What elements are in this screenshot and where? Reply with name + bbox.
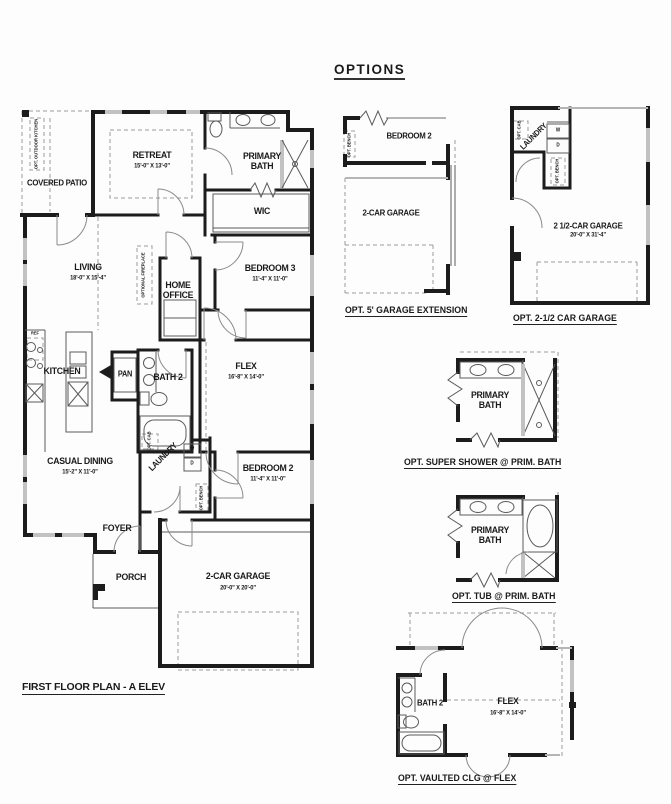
dim-label-bedroom2: 11'-4" X 11'-0" (250, 477, 285, 484)
opt1-label-opt-bench: OPT. BENCH (348, 133, 353, 158)
label-dryer: D (190, 461, 193, 466)
floor-plan-sheet: OPTIONS COVERED PATIO OPT. OUTDOOR KITCH… (0, 0, 671, 804)
room-label-covered-patio: COVERED PATIO (27, 178, 87, 187)
label-ref: REF (31, 332, 39, 337)
room-label-porch: PORCH (116, 573, 146, 583)
room-label-casual-dining: CASUAL DINING (47, 457, 113, 467)
room-label-flex: FLEX (235, 362, 256, 372)
room-label-pan: PAN (118, 371, 132, 380)
opt5-room-label-flex: FLEX (497, 697, 518, 707)
room-label-primary-bath: PRIMARY BATH (237, 152, 287, 173)
opt2-dim-label-garage: 20'-0" X 31'-4" (570, 233, 606, 240)
opt5-caption: OPT. VAULTED CLG @ FLEX (398, 773, 516, 785)
label-washer: W (190, 447, 194, 452)
room-label-living: LIVING (74, 263, 101, 273)
dim-label-living: 18'-0" X 15'-4" (70, 276, 106, 283)
label-opt-cab: OPT. CAB (148, 431, 153, 450)
opt2-caption: OPT. 2-1/2 CAR GARAGE (513, 313, 617, 325)
room-label-bedroom2: BEDROOM 2 (243, 464, 293, 474)
opt2-label-opt-cab: OPT. CAB (518, 120, 523, 139)
opt5-room-label-bath2: BATH 2 (417, 698, 443, 707)
room-label-garage: 2-CAR GARAGE (206, 572, 270, 582)
opt1-room-label-garage: 2-CAR GARAGE (362, 208, 419, 217)
dim-label-retreat: 15'-0" X 13'-0" (134, 164, 170, 171)
opt2-label-opt-bench: OPT. BENCH (556, 159, 561, 184)
room-label-kitchen: KITCHEN (44, 367, 81, 377)
dim-label-bedroom3: 11'-4" X 11'-0" (252, 277, 287, 284)
dim-label-flex: 16'-8" X 14'-0" (228, 375, 264, 382)
opt3-caption: OPT. SUPER SHOWER @ PRIM. BATH (404, 457, 561, 469)
page-title: OPTIONS (334, 62, 405, 80)
room-label-wic: WIC (254, 207, 270, 217)
opt3-room-label-primary-bath: PRIMARY BATH (465, 391, 515, 412)
dim-label-garage: 20'-0" X 20'-0" (220, 586, 256, 593)
plan-title: FIRST FLOOR PLAN - A ELEV (22, 681, 165, 695)
room-label-foyer: FOYER (103, 524, 132, 534)
opt2-room-label-garage: 2 1/2-CAR GARAGE (553, 221, 622, 230)
room-label-bath2: BATH 2 (153, 373, 182, 383)
opt1-caption: OPT. 5' GARAGE EXTENSION (345, 305, 467, 317)
opt2-label-washer: W (556, 128, 560, 133)
opt4-caption: OPT. TUB @ PRIM. BATH (452, 591, 555, 603)
room-label-opt-outdoor-kitchen: OPT. OUTDOOR KITCHEN (35, 119, 40, 169)
room-label-bedroom3: BEDROOM 3 (245, 264, 295, 274)
dim-label-casual-dining: 15'-2" X 11'-0" (62, 470, 97, 477)
opt1-room-label-bedroom2: BEDROOM 2 (387, 131, 432, 140)
opt4-room-label-primary-bath: PRIMARY BATH (465, 526, 515, 547)
room-label-optional-fireplace: OPTIONAL FIREPLACE (142, 252, 147, 297)
option-5-drawing (398, 608, 576, 777)
room-label-home-office: HOME OFFICE (157, 281, 199, 302)
label-opt-bench: OPT. BENCH (200, 486, 205, 511)
main-plan-walls (22, 110, 312, 670)
room-label-retreat: RETREAT (133, 151, 172, 161)
opt5-dim-label-flex: 16'-8" X 14'-0" (490, 711, 526, 718)
opt2-label-dryer: D (556, 143, 559, 148)
